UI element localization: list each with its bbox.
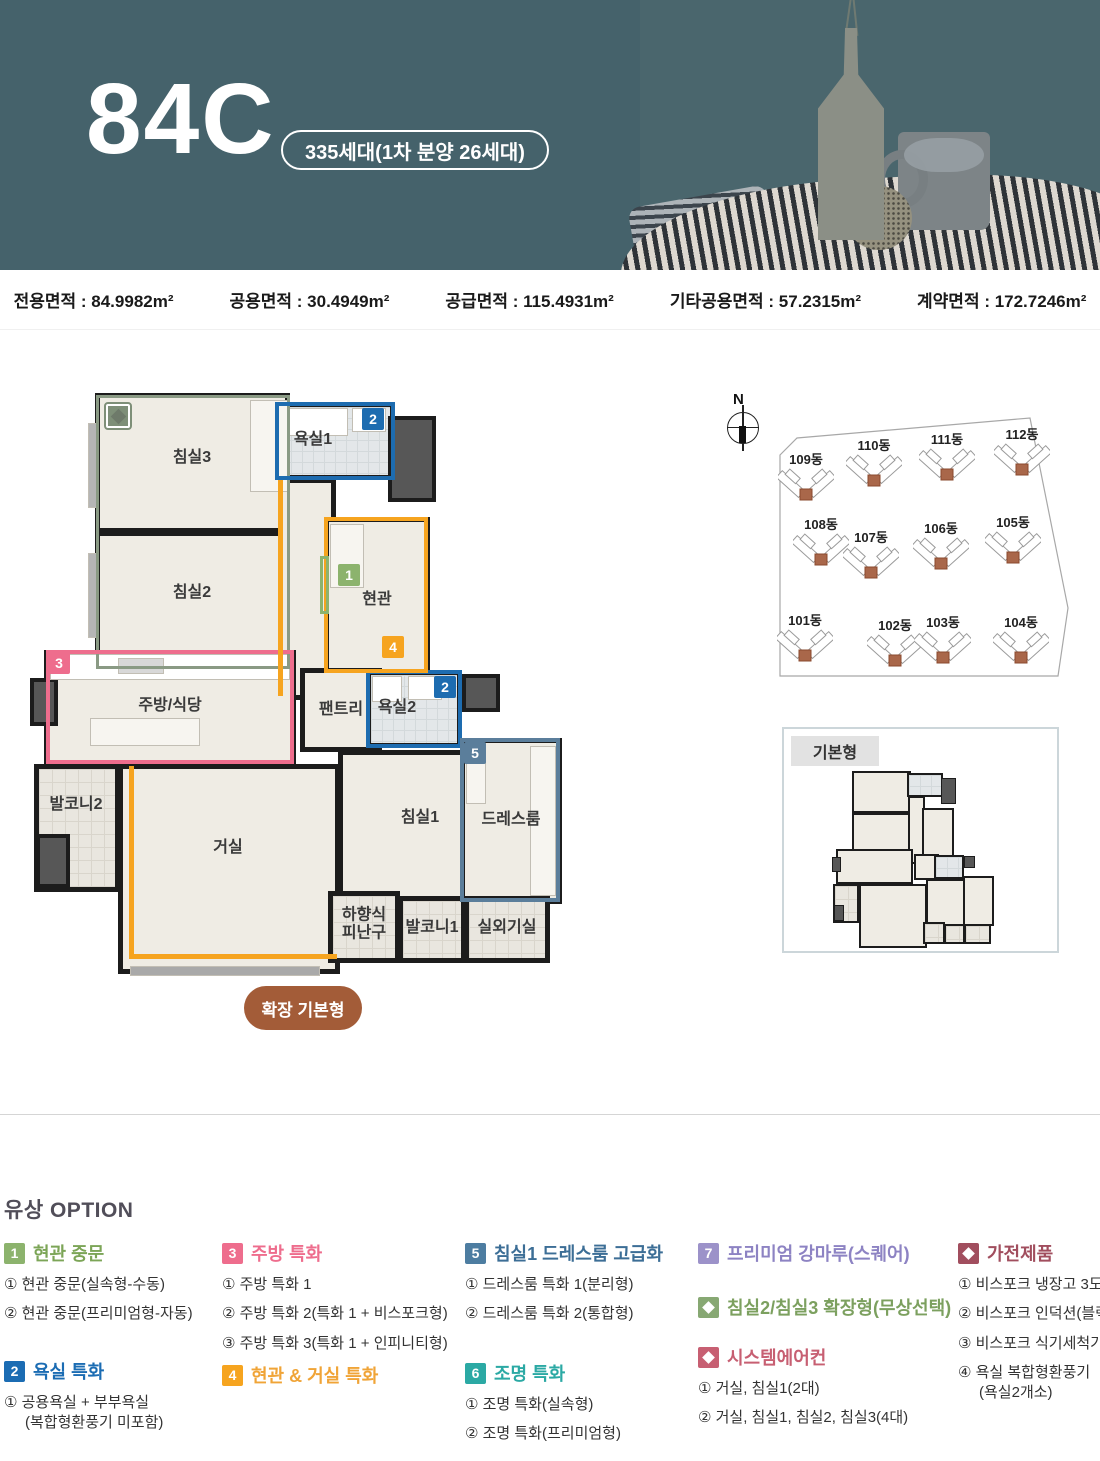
diamond-icon — [698, 1297, 719, 1318]
room-label: 침실3 — [173, 449, 211, 467]
building-icon — [985, 528, 1041, 566]
expanded-basic-type-button[interactable]: 확장 기본형 — [244, 986, 362, 1030]
option-item-list: ① 비스포크 냉장고 3도어② 비스포크 인덕션(블랙)③ 비스포크 식기세척기… — [958, 1275, 1100, 1403]
room-label: 주방/식당 — [138, 697, 201, 715]
plan-option-badge-2: 2 — [434, 676, 456, 698]
option-section: 5침실1 드레스룸 고급화① 드레스룸 특화 1(분리형)② 드레스룸 특화 2… — [465, 1240, 705, 1325]
option-item: ③ 비스포크 식기세척기 — [958, 1334, 1100, 1354]
paid-option-title: 유상 OPTION — [4, 1194, 133, 1224]
room-bedroom3 — [852, 771, 911, 814]
compass-icon — [739, 426, 746, 443]
room-label: 발코니1 — [405, 919, 458, 937]
option-section-header: 시스템에어컨 — [698, 1344, 938, 1370]
option-item: ② 거실, 침실1, 침실2, 침실3(4대) — [698, 1408, 938, 1428]
building-icon — [919, 445, 975, 483]
option-number-badge: 2 — [4, 1361, 25, 1382]
building-icon — [778, 465, 834, 503]
section-divider — [0, 1114, 1100, 1115]
option-item: ① 조명 특화(실속형) — [465, 1395, 705, 1415]
fixture — [130, 966, 320, 976]
option-number-badge: 6 — [465, 1363, 486, 1384]
option-item-list: ① 현관 중문(실속형-수동)② 현관 중문(프리미엄형-자동) — [4, 1275, 244, 1325]
room-label: 현관 — [362, 591, 391, 609]
room-entrance — [922, 808, 954, 856]
option-section-title: 시스템에어컨 — [727, 1344, 826, 1370]
unit-type-title: 84C — [86, 62, 275, 177]
extension-line — [278, 480, 283, 696]
household-badge: 335세대(1차 분양 26세대) — [281, 130, 549, 170]
site-plan: N 109동110동111동112동108동107동106동105동101동10… — [700, 393, 1095, 693]
building-icon — [793, 530, 849, 568]
header-photo — [640, 0, 1100, 270]
building-icon — [846, 451, 902, 489]
utility-shaft — [941, 778, 956, 804]
utility-shaft — [36, 834, 70, 888]
option-item: ① 드레스룸 특화 1(분리형) — [465, 1275, 705, 1295]
option-item-subtext: (욕실2개소) — [958, 1383, 1100, 1403]
room-label: 거실 — [213, 839, 242, 857]
option-item: ① 주방 특화 1 — [222, 1275, 462, 1295]
room-balcony1 — [944, 924, 965, 944]
basic-type-label: 기본형 — [791, 736, 879, 766]
building-icon — [993, 628, 1049, 666]
building-icon — [994, 440, 1050, 478]
option-item: ② 조명 특화(프리미엄형) — [465, 1424, 705, 1444]
extension-line — [129, 954, 337, 959]
option-item: ① 거실, 침실1(2대) — [698, 1379, 938, 1399]
option-section-header: 1현관 중문 — [4, 1240, 244, 1266]
option-section-title: 침실1 드레스룸 고급화 — [494, 1240, 663, 1266]
building-icon — [913, 534, 969, 572]
expansion-diamond-marker — [106, 404, 130, 428]
building-icon — [843, 543, 899, 581]
option-section-title: 침실2/침실3 확장형(무상선택) — [727, 1294, 951, 1320]
utility-shaft — [964, 856, 976, 868]
option-number-badge: 1 — [4, 1243, 25, 1264]
option-section-header: 가전제품 — [958, 1240, 1100, 1266]
floor-plan: 침실3욕실1침실2현관주방/식당팬트리욕실2발코니2거실침실1드레스룸하향식 피… — [30, 388, 590, 980]
room-kitchen — [836, 849, 913, 884]
option-section: 2욕실 특화① 공용욕실 + 부부욕실(복합형환풍기 미포함) — [4, 1358, 244, 1434]
diamond-icon — [958, 1243, 979, 1264]
option-section-header: 침실2/침실3 확장형(무상선택) — [698, 1294, 938, 1320]
area-item: 계약면적 : 172.7246m² — [889, 287, 1100, 312]
option-section: 3주방 특화① 주방 특화 1② 주방 특화 2(특화 1 + 비스포크형)③ … — [222, 1240, 462, 1354]
option-section: 1현관 중문① 현관 중문(실속형-수동)② 현관 중문(프리미엄형-자동) — [4, 1240, 244, 1325]
building-icon — [915, 628, 971, 666]
option-item: ① 공용욕실 + 부부욕실(복합형환풍기 미포함) — [4, 1393, 244, 1434]
header: 84C 335세대(1차 분양 26세대) — [0, 0, 1100, 270]
diamond-inner — [962, 1247, 975, 1260]
option-section-header: 3주방 특화 — [222, 1240, 462, 1266]
room-label: 발코니2 — [49, 796, 102, 814]
utility-shaft — [462, 674, 500, 712]
utility-shaft — [834, 905, 844, 921]
diamond-inner — [702, 1301, 715, 1314]
option-item: ② 현관 중문(프리미엄형-자동) — [4, 1304, 244, 1324]
option-section-title: 조명 특화 — [494, 1360, 565, 1386]
option-section-title: 가전제품 — [987, 1240, 1053, 1266]
area-item: 공급면적 : 115.4931m² — [417, 287, 641, 312]
room-bath2 — [934, 855, 963, 879]
option-section-title: 프리미엄 강마루(스퀘어) — [727, 1240, 910, 1266]
utility-shaft — [832, 857, 841, 872]
option-item: ④ 욕실 복합형환풍기(욕실2개소) — [958, 1363, 1100, 1404]
option-item: ② 비스포크 인덕션(블랙) — [958, 1304, 1100, 1324]
plan-option-badge-5: 5 — [464, 742, 486, 764]
option-section: 시스템에어컨① 거실, 침실1(2대)② 거실, 침실1, 침실2, 침실3(4… — [698, 1344, 938, 1429]
room-outdoor — [964, 924, 990, 944]
option-number-badge: 7 — [698, 1243, 719, 1264]
option-item: ③ 주방 특화 3(특화 1 + 인피니티형) — [222, 1334, 462, 1354]
room-dressroom — [963, 876, 994, 927]
area-item: 기타공용면적 : 57.2315m² — [642, 287, 889, 312]
option-number-badge: 4 — [222, 1365, 243, 1386]
bottle-vase — [818, 28, 884, 240]
option-section: 4현관 & 거실 특화 — [222, 1362, 462, 1388]
room-label: 침실2 — [173, 584, 211, 602]
diamond-icon — [110, 408, 126, 424]
option-item: ① 현관 중문(실속형-수동) — [4, 1275, 244, 1295]
room-label: 욕실1 — [294, 431, 332, 449]
area-item: 공용면적 : 30.4949m² — [202, 287, 418, 312]
room-label: 실외기실 — [478, 919, 537, 937]
option-section-header: 4현관 & 거실 특화 — [222, 1362, 462, 1388]
option-zone-outline — [320, 556, 329, 614]
building-icon — [777, 626, 833, 664]
option-section: 침실2/침실3 확장형(무상선택) — [698, 1294, 938, 1320]
plan-option-badge-4: 4 — [382, 636, 404, 658]
room-label: 드레스룸 — [482, 811, 541, 829]
option-section-title: 주방 특화 — [251, 1240, 322, 1266]
paid-option-area: 1현관 중문① 현관 중문(실속형-수동)② 현관 중문(프리미엄형-자동)2욕… — [0, 1240, 1100, 1461]
option-item: ② 드레스룸 특화 2(통합형) — [465, 1304, 705, 1324]
option-section-title: 현관 중문 — [33, 1240, 104, 1266]
option-zone-outline — [96, 395, 290, 669]
room-label: 침실1 — [401, 809, 439, 827]
diamond-icon — [698, 1347, 719, 1368]
option-item-list: ① 조명 특화(실속형)② 조명 특화(프리미엄형) — [465, 1395, 705, 1445]
option-number-badge: 5 — [465, 1243, 486, 1264]
option-section: 7프리미엄 강마루(스퀘어) — [698, 1240, 938, 1266]
option-section-header: 2욕실 특화 — [4, 1358, 244, 1384]
option-section-title: 욕실 특화 — [33, 1358, 104, 1384]
option-number-badge: 3 — [222, 1243, 243, 1264]
option-item: ① 비스포크 냉장고 3도어 — [958, 1275, 1100, 1295]
option-item: ② 주방 특화 2(특화 1 + 비스포크형) — [222, 1304, 462, 1324]
option-item-list: ① 거실, 침실1(2대)② 거실, 침실1, 침실2, 침실3(4대) — [698, 1379, 938, 1429]
option-item-subtext: (복합형환풍기 미포함) — [4, 1413, 244, 1433]
room-escape — [923, 922, 945, 944]
plan-option-badge-3: 3 — [48, 652, 70, 674]
room-bath1 — [907, 773, 944, 797]
option-section-title: 현관 & 거실 특화 — [251, 1362, 378, 1388]
utility-shaft — [388, 416, 436, 502]
extension-line — [129, 766, 134, 958]
basic-type-mini-plan — [832, 769, 1012, 949]
option-section-header: 5침실1 드레스룸 고급화 — [465, 1240, 705, 1266]
option-section-header: 6조명 특화 — [465, 1360, 705, 1386]
page: 84C 335세대(1차 분양 26세대) 전용면적 : 84.9982m²공용… — [0, 0, 1100, 1461]
room-label: 팬트리 — [319, 701, 363, 719]
option-item-list: ① 드레스룸 특화 1(분리형)② 드레스룸 특화 2(통합형) — [465, 1275, 705, 1325]
room-living — [118, 764, 340, 974]
option-section: 6조명 특화① 조명 특화(실속형)② 조명 특화(프리미엄형) — [465, 1360, 705, 1445]
basic-type-box: 기본형 — [782, 727, 1059, 953]
room-living — [859, 884, 927, 948]
option-section: 가전제품① 비스포크 냉장고 3도어② 비스포크 인덕션(블랙)③ 비스포크 식… — [958, 1240, 1100, 1403]
option-item-list: ① 주방 특화 1② 주방 특화 2(특화 1 + 비스포크형)③ 주방 특화 … — [222, 1275, 462, 1354]
room-label: 욕실2 — [378, 699, 416, 717]
plan-option-badge-1: 1 — [338, 564, 360, 586]
plan-option-badge-2: 2 — [362, 408, 384, 430]
option-section-header: 7프리미엄 강마루(스퀘어) — [698, 1240, 938, 1266]
area-item: 전용면적 : 84.9982m² — [0, 287, 202, 312]
area-info-bar: 전용면적 : 84.9982m²공용면적 : 30.4949m²공급면적 : 1… — [0, 270, 1100, 330]
room-label: 하향식 피난구 — [342, 907, 386, 944]
diamond-inner — [702, 1351, 715, 1364]
option-item-list: ① 공용욕실 + 부부욕실(복합형환풍기 미포함) — [4, 1393, 244, 1434]
